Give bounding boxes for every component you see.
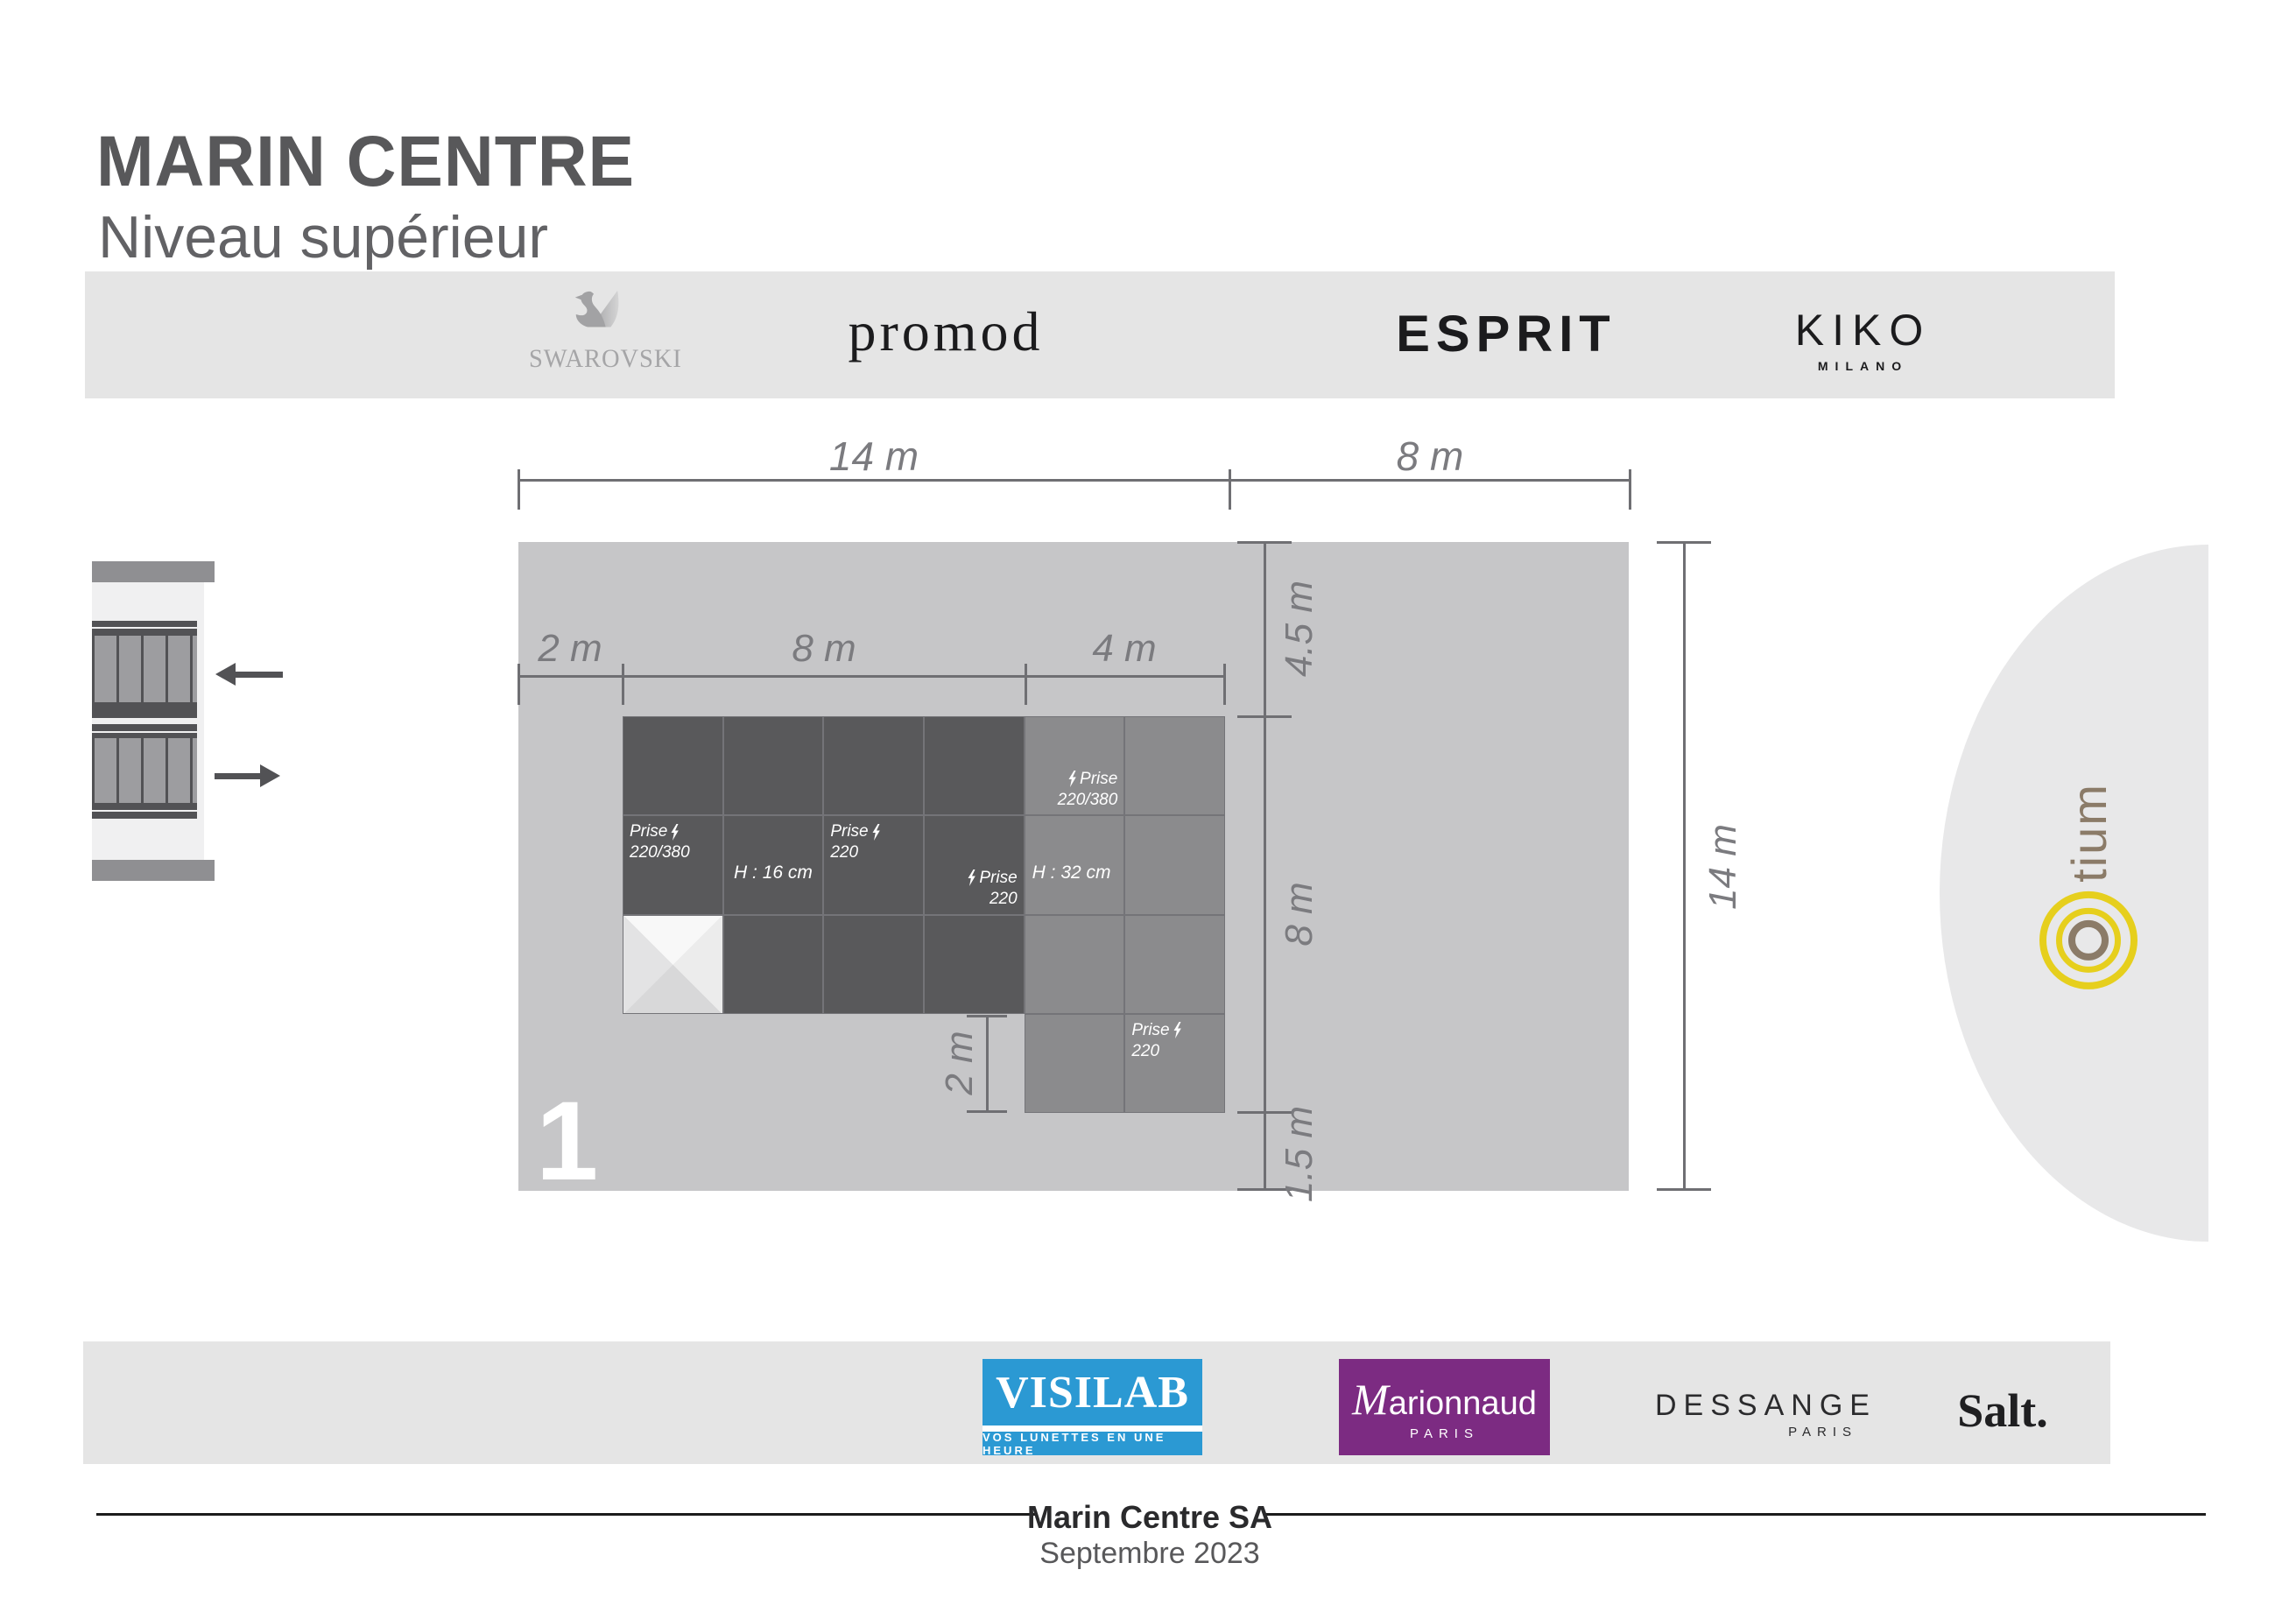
outlet-label: Prise 220/380	[1058, 769, 1118, 811]
salt-logo: Salt.	[1946, 1383, 2060, 1438]
swarovski-logo: SWAROVSKI	[525, 289, 666, 374]
dimension-tick	[967, 1110, 1007, 1113]
dessange-logo: DESSANGE PARIS	[1655, 1389, 1870, 1440]
kiko-wordmark: KIKO	[1778, 305, 1948, 355]
dimension-tick	[967, 1015, 1007, 1017]
outlet-label: Prise 220/380	[630, 821, 690, 863]
lightning-bolt-icon	[967, 869, 976, 886]
module-cell: Prise 220	[1124, 1014, 1225, 1113]
swarovski-wordmark: SWAROVSKI	[529, 344, 662, 374]
outlet-label: Prise 220	[967, 868, 1017, 910]
module-cell: Prise 220/380	[623, 815, 723, 914]
right-dimension-line	[1264, 542, 1266, 1191]
visilab-tagline: VOS LUNETTES EN UNE HEURE	[982, 1432, 1202, 1455]
dimension-tick	[1657, 1188, 1711, 1191]
module-cell	[1124, 716, 1225, 815]
module-cell: Prise 220	[924, 815, 1025, 914]
arrow-right-icon	[215, 764, 280, 787]
dimension-label-4m: 4 m	[1028, 627, 1221, 671]
dessange-wordmark: DESSANGE	[1655, 1389, 1870, 1423]
promod-logo: promod	[814, 299, 1077, 364]
module-cell	[823, 915, 924, 1014]
module-cell	[723, 915, 824, 1014]
arrow-left-icon	[215, 663, 283, 686]
module-cell: Prise 220/380	[1025, 716, 1125, 815]
dessange-paris-label: PARIS	[1655, 1425, 1870, 1440]
kiko-milano-label: MILANO	[1778, 359, 1948, 373]
footer-date: Septembre 2023	[1018, 1537, 1281, 1571]
esprit-logo: ESPRIT	[1392, 305, 1620, 363]
sub-dimension-line	[986, 1016, 989, 1113]
dimension-tick	[1237, 715, 1292, 718]
dimension-label-8m: 8 m	[1334, 433, 1526, 480]
dimension-tick	[1629, 469, 1631, 510]
outlet-label: Prise 220	[830, 821, 880, 863]
module-cell	[924, 915, 1025, 1014]
module-cell	[924, 716, 1025, 815]
dimension-label-8m: 8 m	[728, 627, 920, 671]
inner-dimension-line	[518, 675, 1226, 678]
escalator-upper-belt	[92, 621, 197, 718]
dimension-label-1-5m: 1.5 m	[1278, 1106, 1321, 1202]
skylight-module	[623, 915, 723, 1014]
footer-rule-right	[1264, 1513, 2206, 1516]
marionnaud-logo: Marionnaud PARIS	[1339, 1359, 1550, 1455]
dimension-tick	[1229, 469, 1231, 510]
lightning-bolt-icon	[1067, 771, 1077, 787]
footer-company: Marin Centre SA	[1018, 1499, 1281, 1536]
module-cell	[1124, 915, 1225, 1014]
page-title: MARIN CENTRE	[96, 121, 635, 203]
module-cell: Prise 220	[823, 815, 924, 914]
escalator-bottom-landing	[92, 860, 215, 881]
marionnaud-paris-label: PARIS	[1410, 1426, 1479, 1441]
module-grid: Prise 220/380 Prise 220/380 H : 16 cm Pr…	[623, 716, 1225, 1113]
height-label: H : 16 cm	[734, 862, 813, 883]
dimension-label-2m: 2 m	[474, 627, 666, 671]
dimension-label-8m: 8 m	[1278, 882, 1321, 946]
module-cell	[1124, 815, 1225, 914]
visilab-logo: VISILAB VOS LUNETTES EN UNE HEURE	[982, 1359, 1202, 1455]
dimension-label-4-5m: 4.5 m	[1278, 581, 1321, 677]
overall-dimension-line	[1683, 542, 1686, 1191]
module-cell	[823, 716, 924, 815]
module-cell	[623, 716, 723, 815]
module-cell: H : 32 cm	[1025, 815, 1125, 914]
footer-rule-left	[96, 1513, 1036, 1516]
dimension-tick	[1657, 541, 1711, 544]
lightning-bolt-icon	[871, 824, 881, 841]
dimension-label-14m: 14 m	[778, 433, 970, 480]
otium-wordmark: tium	[2060, 783, 2117, 883]
dimension-label-14m: 14 m	[1701, 824, 1745, 910]
module-cell: H : 16 cm	[723, 815, 824, 914]
lightning-bolt-icon	[670, 824, 680, 841]
dimension-tick	[1223, 664, 1226, 705]
kiko-logo: KIKO MILANO	[1778, 305, 1948, 373]
escalator-lower-belt	[92, 724, 197, 819]
marionnaud-wordmark: Marionnaud	[1352, 1374, 1537, 1425]
outlet-label: Prise 220	[1131, 1020, 1181, 1062]
swan-icon	[567, 289, 623, 340]
height-label: H : 32 cm	[1032, 862, 1111, 883]
dimension-tick	[518, 469, 520, 510]
top-brand-banner: SWAROVSKI promod ESPRIT KIKO MILANO	[85, 271, 2115, 398]
concentric-rings-icon	[2039, 891, 2138, 989]
module-cell	[1025, 915, 1125, 1014]
module-cell	[1025, 1014, 1125, 1113]
dimension-label-2m: 2 m	[938, 1031, 982, 1095]
module-cell	[723, 716, 824, 815]
dimension-tick	[1237, 541, 1292, 544]
page-subtitle: Niveau supérieur	[98, 203, 548, 271]
visilab-wordmark: VISILAB	[982, 1359, 1202, 1425]
dimension-tick	[1025, 664, 1027, 705]
escalator-icon	[92, 561, 215, 902]
lightning-bolt-icon	[1173, 1022, 1182, 1038]
escalator-top-landing	[92, 561, 215, 582]
floor-plan-page: MARIN CENTRE Niveau supérieur SWAROVSKI …	[0, 0, 2296, 1612]
unit-number: 1	[536, 1086, 598, 1198]
